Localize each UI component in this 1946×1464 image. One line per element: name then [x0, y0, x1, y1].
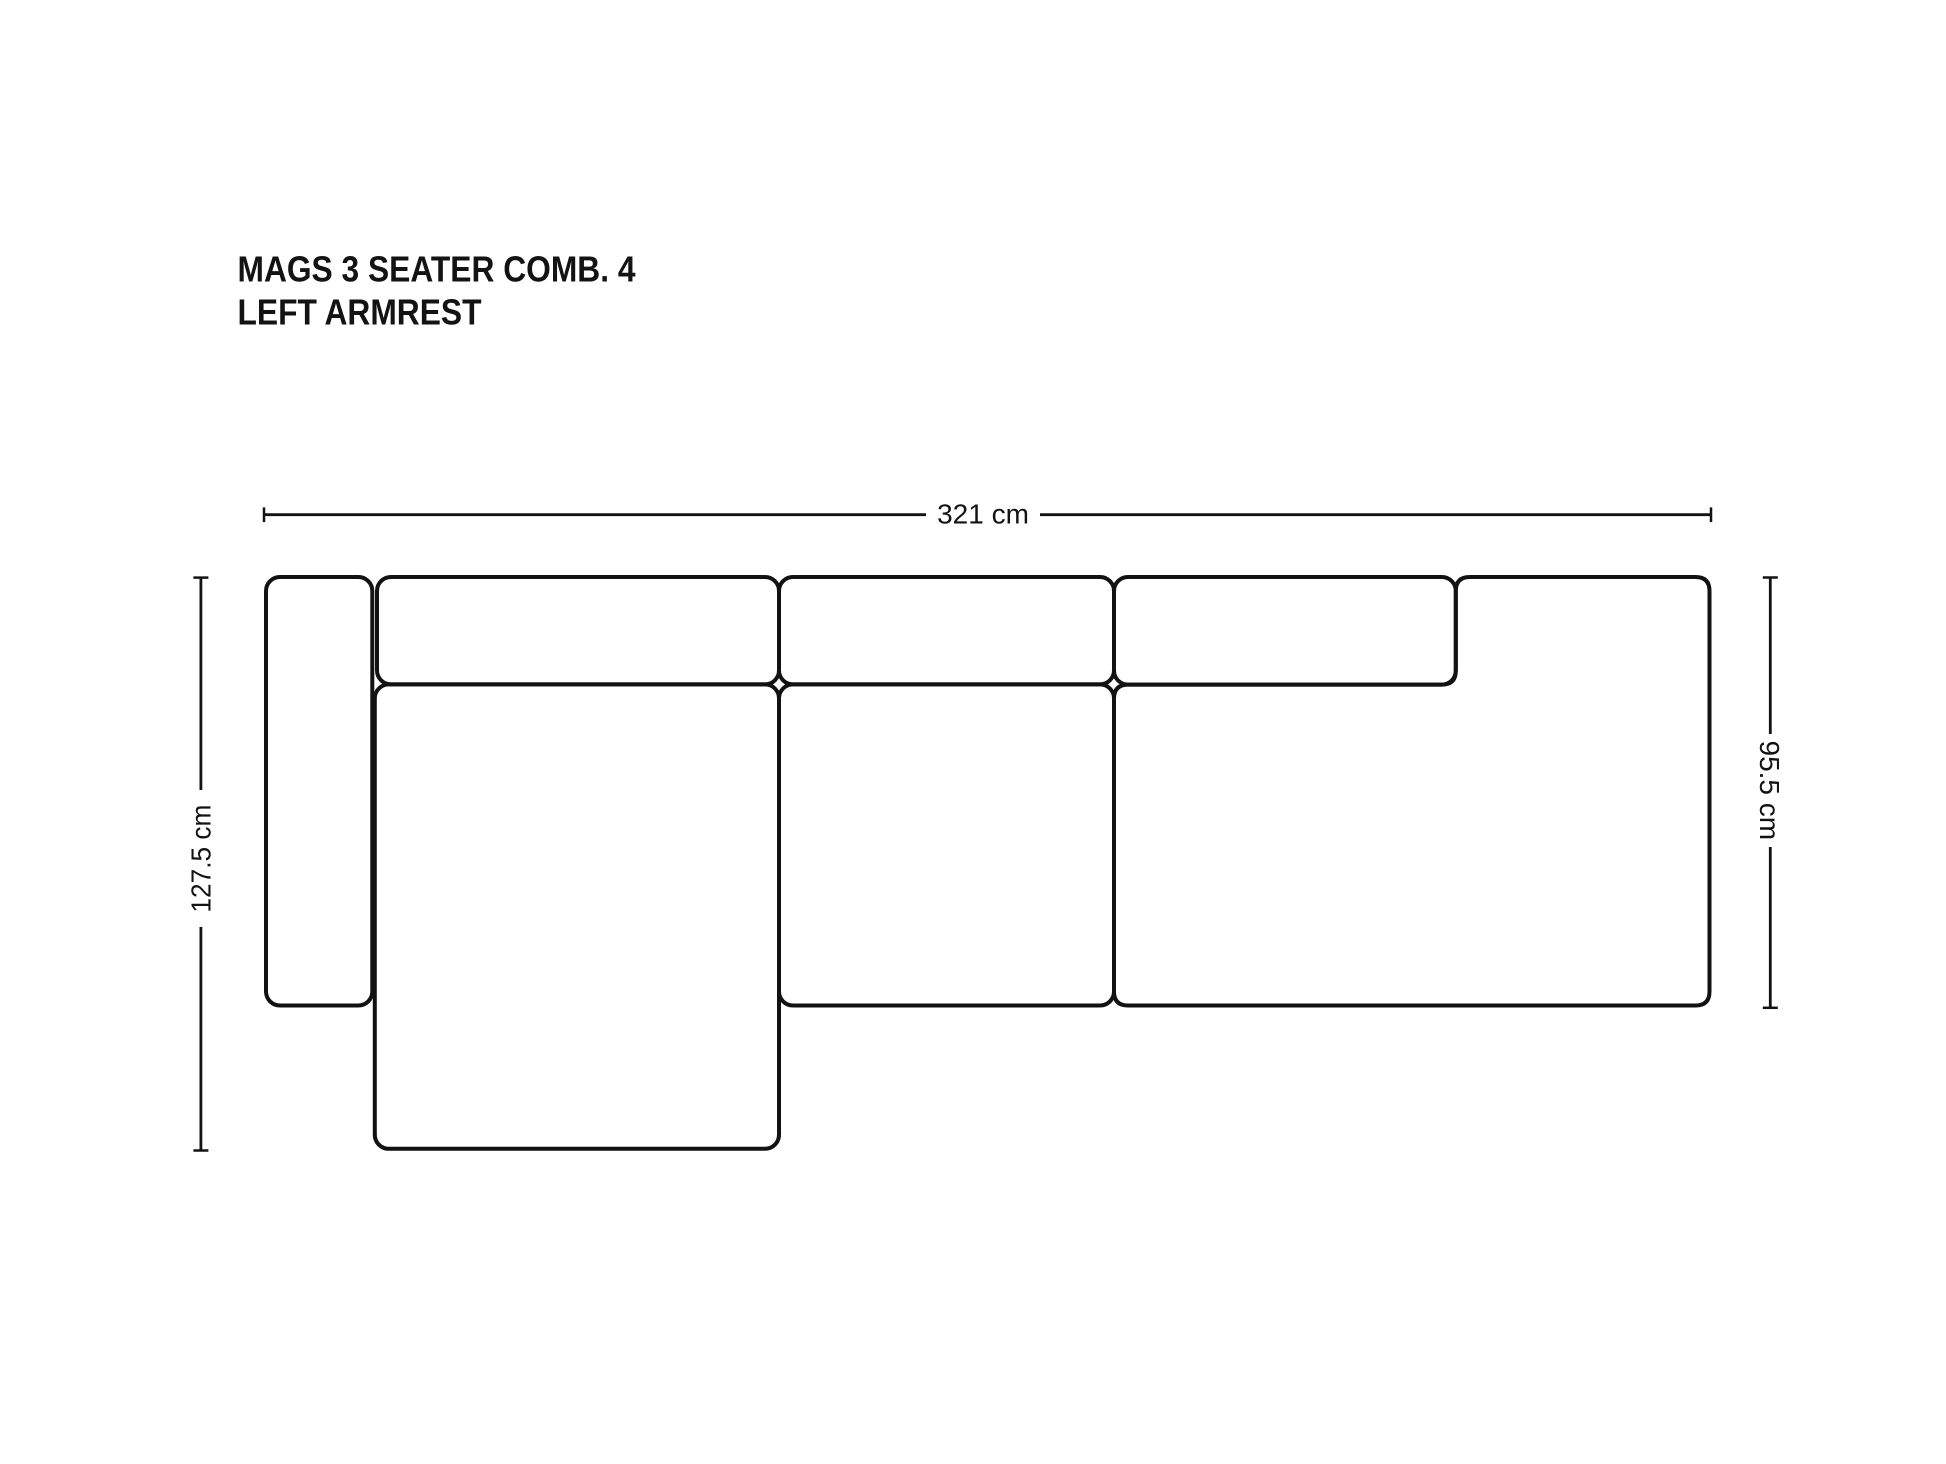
- svg-text:LEFT ARMREST: LEFT ARMREST: [238, 292, 482, 333]
- svg-text:127.5 cm: 127.5 cm: [186, 805, 217, 913]
- svg-text:MAGS 3 SEATER COMB. 4: MAGS 3 SEATER COMB. 4: [238, 249, 637, 290]
- svg-text:95.5 cm: 95.5 cm: [1754, 740, 1785, 840]
- svg-text:321 cm: 321 cm: [937, 498, 1029, 529]
